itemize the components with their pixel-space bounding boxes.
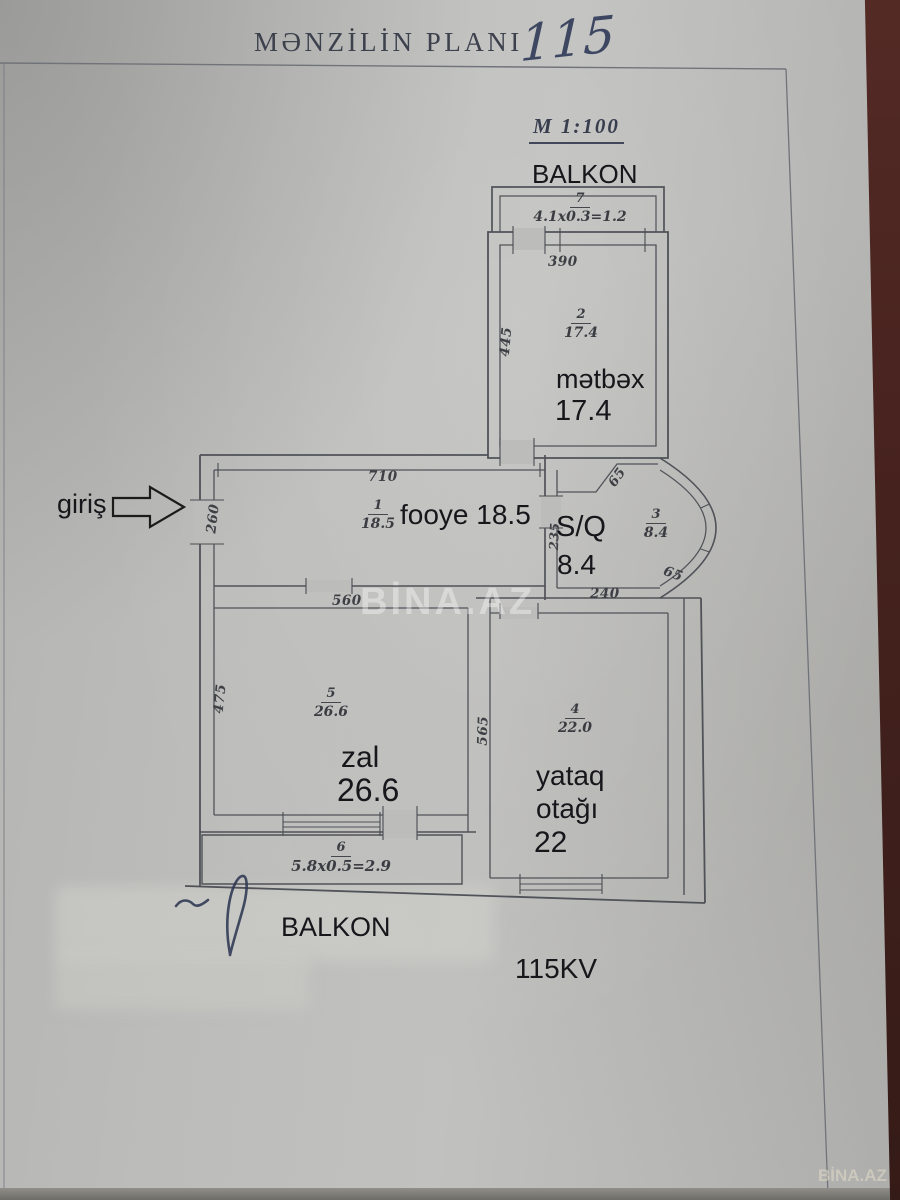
scale-label: M 1:100	[529, 114, 624, 144]
dim-kitchen-width: 390	[548, 256, 578, 270]
kitchen-frac-area: 17.4	[564, 324, 598, 340]
zal-name-label: zal	[341, 743, 379, 773]
page-title: MƏNZİLİN PLANI	[254, 27, 523, 58]
kitchen-number: 2	[571, 308, 590, 324]
sq-area-label: 8.4	[557, 551, 596, 579]
dim-bedroom-height: 565	[477, 716, 492, 746]
dim-kitchen-height: 445	[499, 326, 515, 357]
bedroom-name-label-1: yataq	[536, 762, 605, 790]
bedroom-name-label-2: otağı	[536, 795, 598, 823]
balkon-bottom-label: BALKON	[281, 914, 391, 941]
dim-foyer-width: 710	[368, 471, 398, 485]
sq-room-tag: 3 8.4	[633, 508, 679, 540]
balkon6-number: 6	[331, 841, 350, 857]
watermark-corner: BİNA.AZ	[818, 1166, 887, 1186]
zal-number: 5	[321, 687, 340, 703]
bedroom-area-label: 22	[534, 828, 567, 858]
floor-plan-photo: MƏNZİLİN PLANI 115 M 1:100 BALKON 7 4.1x…	[0, 0, 900, 1200]
dim-sq-bottom: 240	[590, 588, 620, 602]
walls	[185, 187, 705, 903]
sq-frac-area: 8.4	[644, 524, 668, 540]
entrance-arrow-icon	[113, 487, 184, 527]
balkon7-number: 7	[570, 192, 589, 208]
zal-frac-area: 26.6	[314, 703, 348, 719]
kitchen-room-tag: 2 17.4	[550, 308, 612, 340]
kitchen-name-label: mətbəx	[556, 366, 645, 393]
zal-room-tag: 5 26.6	[300, 687, 362, 719]
paper-bottom-edge	[0, 1188, 900, 1200]
bedroom-frac-area: 22.0	[558, 719, 592, 735]
balkon7-formula: 4.1x0.3=1.2	[533, 208, 626, 224]
foyer-room-tag: 1 18.5	[350, 499, 406, 531]
dim-zal-width: 560	[332, 595, 362, 609]
balkon7-dimension: 7 4.1x0.3=1.2	[538, 192, 622, 224]
balkon6-formula: 5.8x0.5=2.9	[291, 857, 391, 874]
sq-number: 3	[646, 508, 665, 524]
foyer-frac-area: 18.5	[361, 515, 395, 531]
bedroom-number: 4	[565, 703, 584, 719]
handwritten-number: 115	[519, 5, 616, 74]
zal-area-label: 26.6	[337, 774, 399, 806]
balkon-top-label: BALKON	[532, 161, 638, 187]
kitchen-area-label: 17.4	[555, 397, 611, 426]
dim-zal-height: 475	[213, 683, 230, 714]
watermark-center: BİNA.AZ	[360, 581, 535, 624]
foyer-number: 1	[368, 499, 387, 515]
sq-name-label: S/Q	[556, 513, 606, 542]
bedroom-room-tag: 4 22.0	[544, 703, 606, 735]
entrance-label: giriş	[57, 491, 107, 518]
footer-note: 115KV	[515, 955, 597, 983]
dim-entrance-door: 260	[205, 503, 222, 534]
foyer-name-label: fooye 18.5	[400, 501, 531, 529]
balkon6-dimension: 6 5.8x0.5=2.9	[289, 841, 393, 874]
page-frame	[0, 63, 828, 1199]
